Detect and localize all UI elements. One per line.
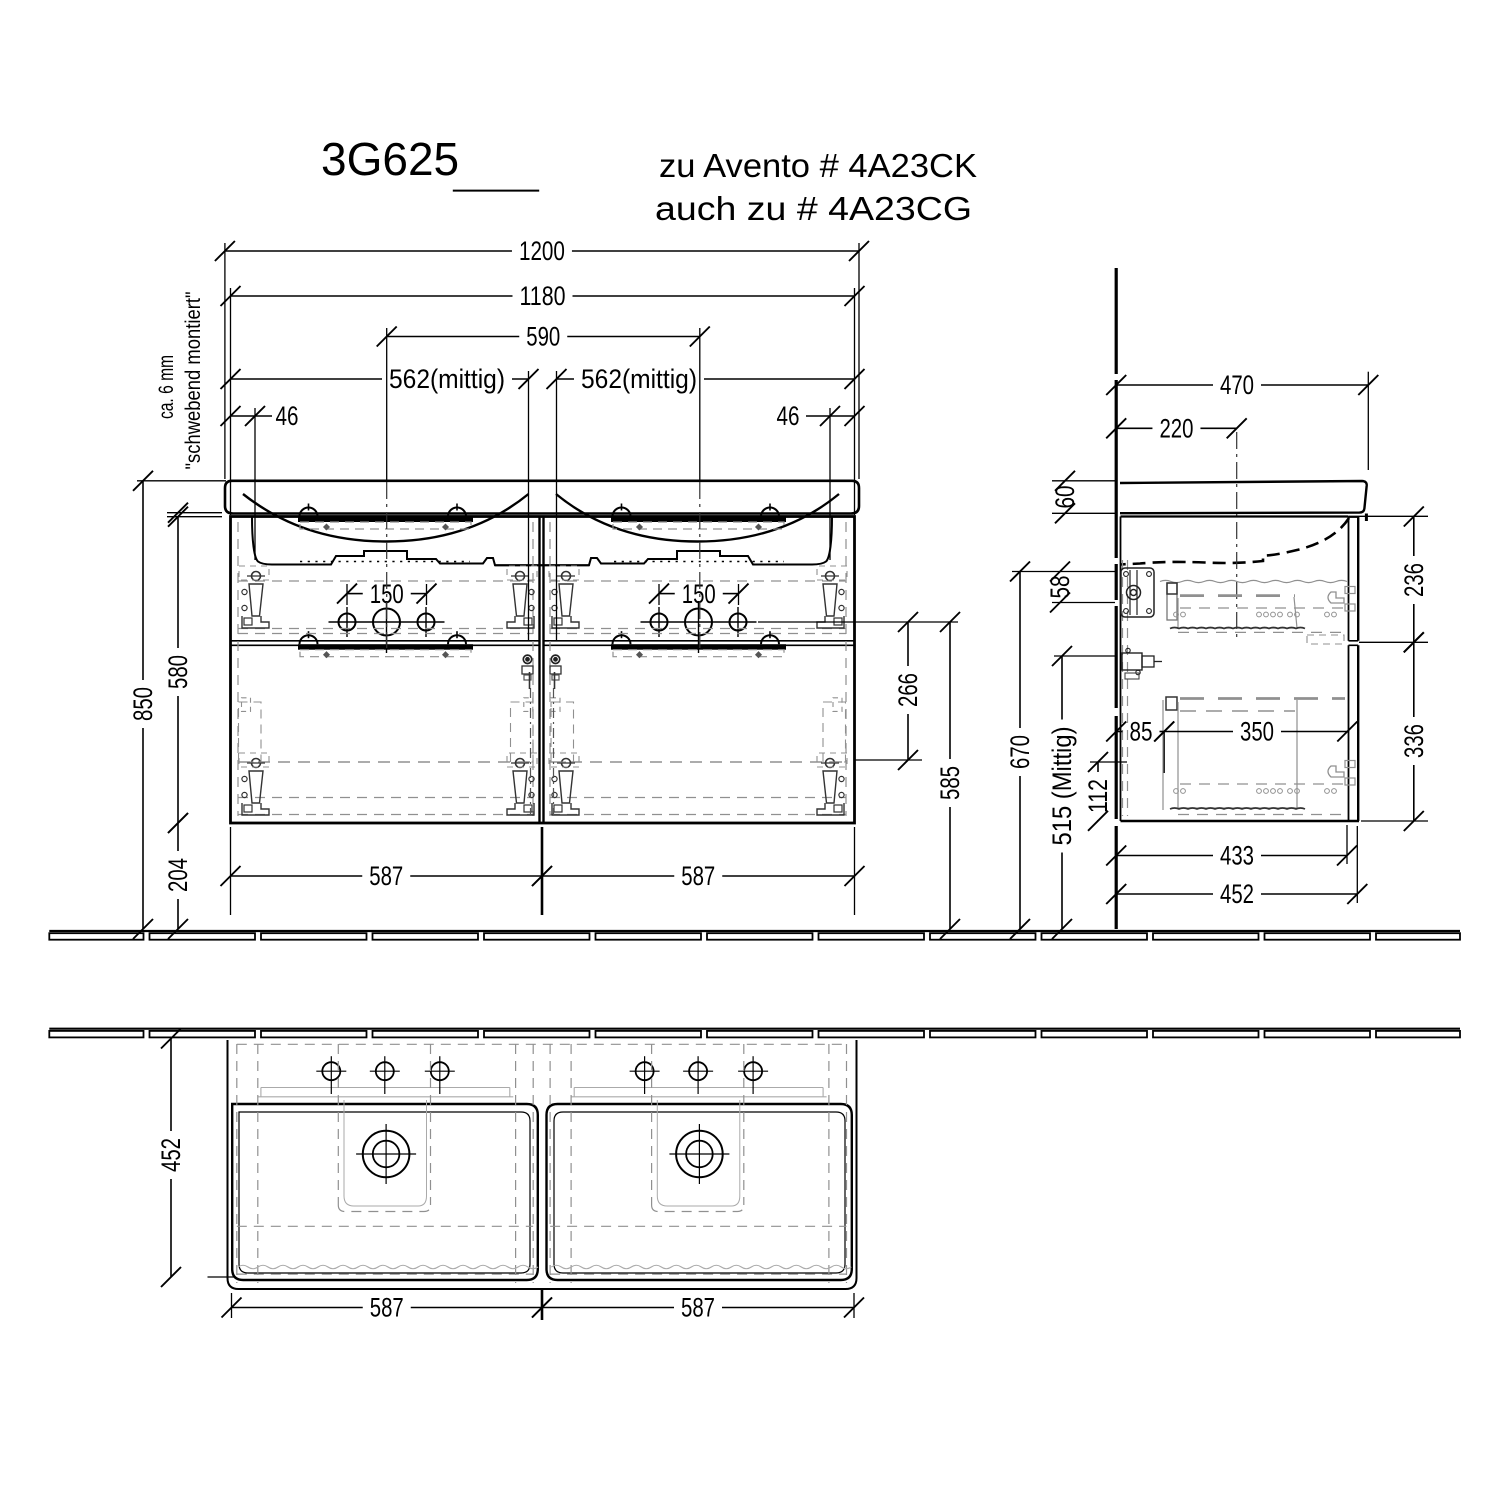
svg-text:470: 470 (1220, 370, 1254, 400)
svg-text:zu Avento # 4A23CK: zu Avento # 4A23CK (659, 147, 977, 184)
svg-text:266: 266 (893, 673, 923, 707)
svg-text:236: 236 (1399, 563, 1429, 597)
svg-text:670: 670 (1005, 735, 1035, 769)
svg-text:1200: 1200 (519, 236, 565, 266)
svg-text:220: 220 (1159, 414, 1193, 444)
svg-text:585: 585 (935, 766, 965, 800)
svg-text:58: 58 (1045, 576, 1075, 599)
svg-text:850: 850 (128, 687, 158, 721)
svg-text:46: 46 (777, 401, 800, 431)
svg-text:562(mittig): 562(mittig) (581, 364, 697, 394)
svg-text:150: 150 (682, 579, 716, 609)
svg-text:562(mittig): 562(mittig) (389, 364, 505, 394)
svg-text:204: 204 (163, 858, 193, 892)
svg-text:590: 590 (526, 322, 560, 352)
svg-text:580: 580 (163, 655, 193, 689)
svg-text:60: 60 (1050, 486, 1080, 509)
svg-text:112: 112 (1083, 779, 1113, 813)
svg-text:587: 587 (681, 1293, 715, 1323)
svg-text:auch zu # 4A23CG: auch zu # 4A23CG (655, 190, 972, 227)
svg-text:ca. 6 mm: ca. 6 mm (155, 355, 178, 419)
svg-text:433: 433 (1220, 841, 1254, 871)
svg-text:452: 452 (156, 1138, 186, 1172)
svg-text:3G625: 3G625 (321, 133, 459, 185)
svg-text:"schwebend montiert": "schwebend montiert" (182, 292, 205, 470)
svg-text:336: 336 (1399, 724, 1429, 758)
svg-text:452: 452 (1220, 879, 1254, 909)
svg-text:587: 587 (370, 1293, 404, 1323)
svg-text:587: 587 (369, 861, 403, 891)
svg-text:587: 587 (681, 861, 715, 891)
svg-text:350: 350 (1240, 717, 1274, 747)
svg-text:1180: 1180 (520, 281, 566, 311)
svg-text:46: 46 (276, 401, 299, 431)
svg-text:515 (Mittig): 515 (Mittig) (1047, 727, 1077, 846)
svg-text:85: 85 (1130, 717, 1153, 747)
